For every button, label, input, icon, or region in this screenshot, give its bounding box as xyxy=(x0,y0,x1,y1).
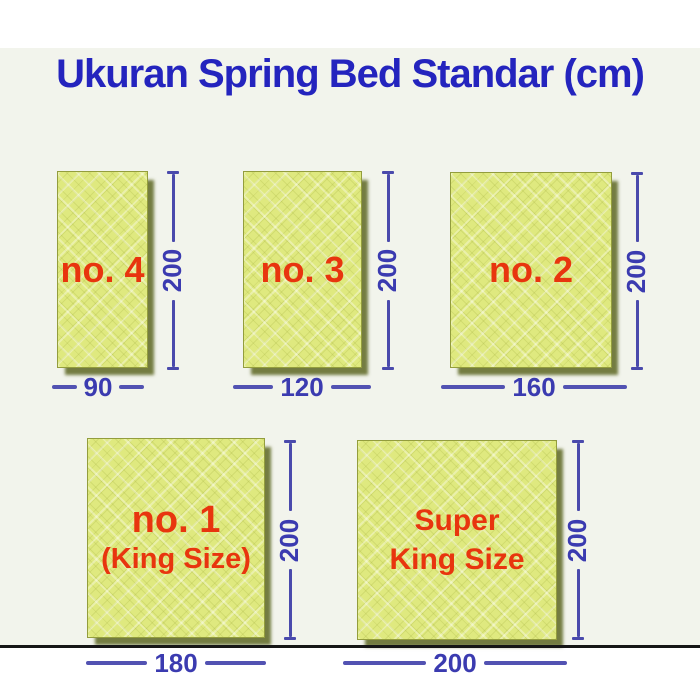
mattress-super-king-sublabel: King Size xyxy=(389,540,524,579)
width-dimension-no4: 90 xyxy=(52,373,144,401)
mattress-no2-label: no. 2 xyxy=(489,249,573,290)
width-value-super-king: 200 xyxy=(426,648,483,679)
height-value-text: 200 xyxy=(158,249,189,292)
dimension-line xyxy=(387,174,390,242)
mattress-no3: no. 3 xyxy=(243,171,362,368)
height-dimension-no2: 200 xyxy=(622,172,652,370)
diagram-panel: Ukuran Spring Bed Standar (cm) no. 4 200… xyxy=(0,48,700,646)
height-dimension-no4: 200 xyxy=(158,171,188,370)
height-value-no1: 200 xyxy=(275,511,305,569)
page-title: Ukuran Spring Bed Standar (cm) xyxy=(0,52,700,97)
dimension-line xyxy=(636,175,639,242)
height-value-no4: 200 xyxy=(158,242,188,300)
mattress-no1-king-size: no. 1 (King Size) xyxy=(87,438,265,638)
height-value-text: 200 xyxy=(275,518,306,561)
width-dimension-no1: 180 xyxy=(86,649,266,677)
height-value-text: 200 xyxy=(563,518,594,561)
dimension-dash xyxy=(484,661,567,665)
dimension-line xyxy=(636,300,639,367)
dimension-end-cap xyxy=(167,367,179,370)
height-value-no3: 200 xyxy=(373,242,403,300)
dimension-dash xyxy=(343,661,426,665)
width-value-no2: 160 xyxy=(505,372,562,403)
mattress-no3-label: no. 3 xyxy=(260,249,344,290)
height-dimension-no3: 200 xyxy=(373,171,403,370)
mattress-super-king-label: Super xyxy=(414,501,499,540)
mattress-no1-label: no. 1 xyxy=(132,499,221,543)
dimension-dash xyxy=(205,661,266,665)
dimension-dash xyxy=(119,385,144,389)
mattress-super-king-size: Super King Size xyxy=(357,440,557,640)
height-value-text: 200 xyxy=(622,249,653,292)
dimension-line xyxy=(172,300,175,368)
dimension-dash xyxy=(52,385,77,389)
width-dimension-super-king: 200 xyxy=(343,649,567,677)
dimension-dash xyxy=(233,385,273,389)
dimension-line xyxy=(577,569,580,637)
height-value-text: 200 xyxy=(373,249,404,292)
dimension-dash xyxy=(86,661,147,665)
dimension-line xyxy=(289,443,292,511)
mattress-no4-label: no. 4 xyxy=(60,249,144,290)
mattress-no4: no. 4 xyxy=(57,171,148,368)
mattress-no1-sublabel: (King Size) xyxy=(101,543,251,576)
bottom-divider-line xyxy=(0,645,700,648)
width-value-no3: 120 xyxy=(273,372,330,403)
width-value-no4: 90 xyxy=(77,372,120,403)
height-dimension-no1: 200 xyxy=(275,440,305,640)
dimension-dash xyxy=(331,385,371,389)
height-value-super-king: 200 xyxy=(563,511,593,569)
height-dimension-super-king: 200 xyxy=(563,440,593,640)
dimension-line xyxy=(172,174,175,242)
width-dimension-no2: 160 xyxy=(441,373,627,401)
dimension-dash xyxy=(441,385,505,389)
height-value-no2: 200 xyxy=(622,242,652,300)
dimension-end-cap xyxy=(284,637,296,640)
width-dimension-no3: 120 xyxy=(233,373,371,401)
dimension-line xyxy=(387,300,390,368)
mattress-no2: no. 2 xyxy=(450,172,612,368)
dimension-dash xyxy=(563,385,627,389)
spring-bed-size-infographic: Ukuran Spring Bed Standar (cm) no. 4 200… xyxy=(0,0,700,700)
dimension-end-cap xyxy=(631,367,643,370)
width-value-no1: 180 xyxy=(147,648,204,679)
dimension-end-cap xyxy=(382,367,394,370)
dimension-end-cap xyxy=(572,637,584,640)
dimension-line xyxy=(577,443,580,511)
dimension-line xyxy=(289,569,292,637)
